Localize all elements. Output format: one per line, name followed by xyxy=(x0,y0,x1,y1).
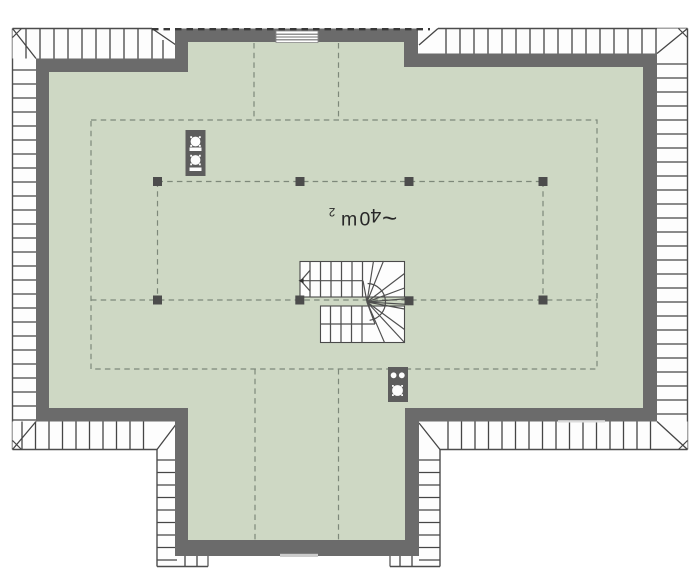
svg-text:2: 2 xyxy=(329,205,335,217)
svg-text:4: 4 xyxy=(370,204,381,226)
svg-text:m: m xyxy=(341,209,357,231)
svg-text:0: 0 xyxy=(360,209,371,231)
svg-text:~: ~ xyxy=(382,203,397,233)
